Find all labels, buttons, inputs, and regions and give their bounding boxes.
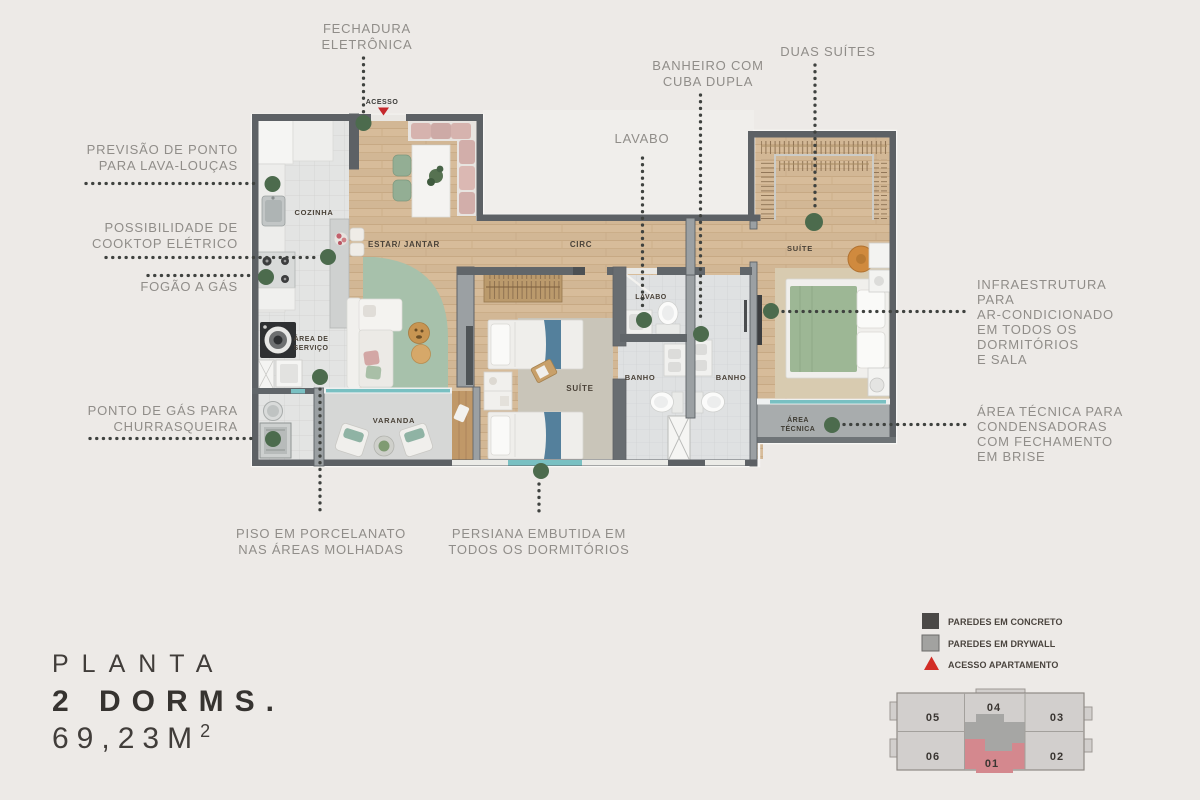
svg-text:TÉCNICA: TÉCNICA bbox=[781, 424, 816, 433]
svg-text:PLANTA: PLANTA bbox=[52, 650, 225, 678]
svg-text:02: 02 bbox=[1050, 751, 1064, 763]
svg-text:EM BRISE: EM BRISE bbox=[977, 449, 1046, 464]
svg-text:CUBA DUPLA: CUBA DUPLA bbox=[663, 74, 753, 89]
svg-text:PARA LAVA-LOUÇAS: PARA LAVA-LOUÇAS bbox=[99, 158, 238, 173]
svg-text:NAS ÁREAS MOLHADAS: NAS ÁREAS MOLHADAS bbox=[238, 542, 403, 557]
svg-text:ÁREA DE: ÁREA DE bbox=[294, 334, 329, 343]
svg-text:ÁREA: ÁREA bbox=[787, 415, 809, 424]
svg-text:TODOS OS DORMITÓRIOS: TODOS OS DORMITÓRIOS bbox=[448, 542, 629, 557]
svg-text:PONTO DE GÁS PARA: PONTO DE GÁS PARA bbox=[88, 403, 238, 418]
svg-text:05: 05 bbox=[926, 712, 940, 724]
svg-text:2 DORMS.: 2 DORMS. bbox=[52, 685, 285, 718]
svg-text:VARANDA: VARANDA bbox=[373, 416, 416, 425]
svg-text:PERSIANA EMBUTIDA EM: PERSIANA EMBUTIDA EM bbox=[452, 526, 626, 541]
svg-text:POSSIBILIDADE DE: POSSIBILIDADE DE bbox=[105, 220, 238, 235]
svg-text:69,23M2: 69,23M2 bbox=[52, 721, 218, 755]
svg-text:ACESSO APARTAMENTO: ACESSO APARTAMENTO bbox=[948, 660, 1058, 670]
svg-text:PAREDES EM CONCRETO: PAREDES EM CONCRETO bbox=[948, 617, 1063, 627]
svg-text:EM TODOS OS: EM TODOS OS bbox=[977, 322, 1077, 337]
svg-text:ELETRÔNICA: ELETRÔNICA bbox=[321, 37, 412, 52]
svg-text:FECHADURA: FECHADURA bbox=[323, 21, 411, 36]
svg-text:INFRAESTRUTURA: INFRAESTRUTURA bbox=[977, 277, 1107, 292]
svg-text:ESTAR/ JANTAR: ESTAR/ JANTAR bbox=[368, 240, 440, 249]
svg-text:ÁREA TÉCNICA PARA: ÁREA TÉCNICA PARA bbox=[977, 404, 1123, 419]
svg-text:01: 01 bbox=[985, 758, 999, 770]
svg-text:COZINHA: COZINHA bbox=[294, 208, 333, 217]
svg-text:COOKTOP ELÉTRICO: COOKTOP ELÉTRICO bbox=[92, 236, 238, 251]
svg-text:E SALA: E SALA bbox=[977, 352, 1027, 367]
svg-text:ACESSO: ACESSO bbox=[366, 99, 399, 106]
svg-text:03: 03 bbox=[1050, 712, 1064, 724]
svg-text:CHURRASQUEIRA: CHURRASQUEIRA bbox=[113, 419, 238, 434]
svg-text:COM FECHAMENTO: COM FECHAMENTO bbox=[977, 434, 1113, 449]
svg-text:SUÍTE: SUÍTE bbox=[566, 384, 594, 393]
svg-text:CIRC: CIRC bbox=[570, 240, 592, 249]
svg-text:06: 06 bbox=[926, 751, 940, 763]
svg-text:LAVABO: LAVABO bbox=[635, 294, 667, 301]
svg-text:FOGÃO A GÁS: FOGÃO A GÁS bbox=[140, 279, 238, 294]
svg-text:PAREDES EM DRYWALL: PAREDES EM DRYWALL bbox=[948, 639, 1056, 649]
svg-text:CONDENSADORAS: CONDENSADORAS bbox=[977, 419, 1107, 434]
svg-text:SERVIÇO: SERVIÇO bbox=[294, 345, 329, 352]
svg-text:BANHEIRO COM: BANHEIRO COM bbox=[652, 58, 763, 73]
svg-text:PREVISÃO DE PONTO: PREVISÃO DE PONTO bbox=[87, 142, 238, 157]
svg-text:PARA: PARA bbox=[977, 292, 1015, 307]
svg-text:AR-CONDICIONADO: AR-CONDICIONADO bbox=[977, 307, 1114, 322]
svg-text:LAVABO: LAVABO bbox=[615, 131, 670, 146]
svg-text:SUÍTE: SUÍTE bbox=[787, 244, 813, 253]
svg-text:PISO EM PORCELANATO: PISO EM PORCELANATO bbox=[236, 526, 406, 541]
svg-text:DORMITÓRIOS: DORMITÓRIOS bbox=[977, 337, 1079, 352]
svg-text:BANHO: BANHO bbox=[716, 373, 747, 382]
svg-text:BANHO: BANHO bbox=[625, 373, 656, 382]
svg-text:04: 04 bbox=[987, 702, 1001, 714]
svg-text:DUAS SUÍTES: DUAS SUÍTES bbox=[780, 44, 875, 59]
